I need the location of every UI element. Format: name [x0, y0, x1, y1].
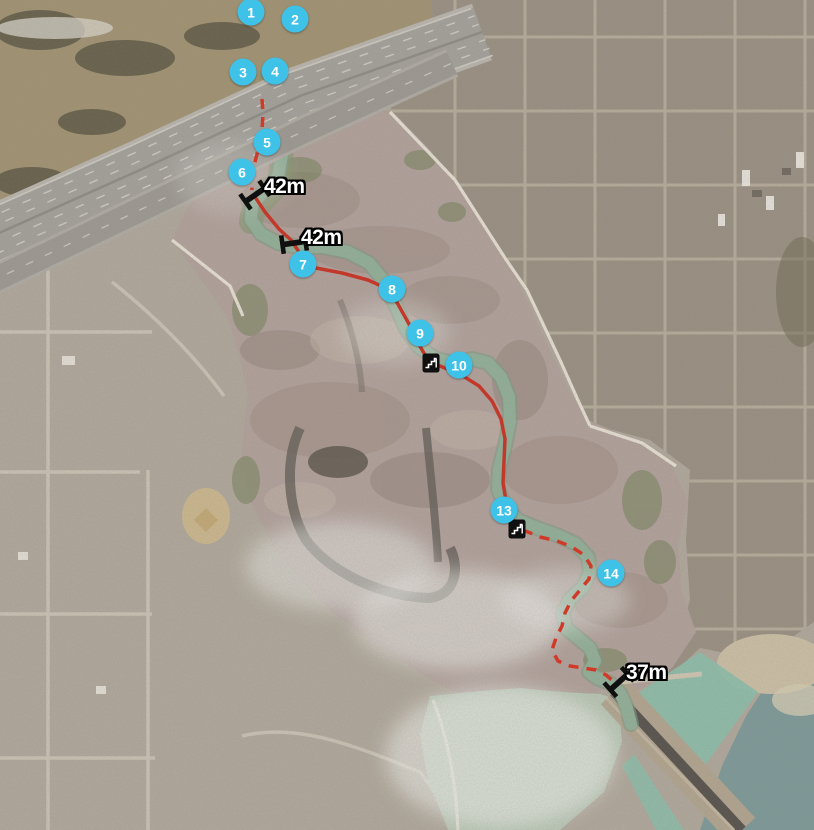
numbered-trail-marker[interactable]: 4	[262, 58, 289, 85]
numbered-trail-marker[interactable]: 2	[282, 6, 309, 33]
marker-number: 7	[299, 257, 307, 271]
marker-number: 6	[238, 165, 246, 179]
numbered-trail-marker[interactable]: 1	[238, 0, 265, 26]
numbered-trail-marker[interactable]: 7	[290, 251, 317, 278]
numbered-trail-marker[interactable]: 10	[446, 352, 473, 379]
marker-number: 13	[496, 503, 512, 517]
numbered-trail-marker[interactable]: 5	[254, 129, 281, 156]
marker-number: 4	[271, 64, 279, 78]
marker-number: 2	[291, 12, 299, 26]
marker-number: 5	[263, 135, 271, 149]
numbered-trail-marker[interactable]: 3	[230, 59, 257, 86]
marker-number: 8	[388, 282, 396, 296]
numbered-trail-marker[interactable]: 14	[598, 560, 625, 587]
marker-layer: 1 2 3 4 5 6 7 8 9 10 13 14	[0, 0, 814, 830]
numbered-trail-marker[interactable]: 13	[491, 497, 518, 524]
marker-number: 10	[451, 358, 467, 372]
numbered-trail-marker[interactable]: 9	[407, 320, 434, 347]
marker-number: 14	[603, 566, 619, 580]
marker-number: 3	[239, 65, 247, 79]
marker-number: 9	[416, 326, 424, 340]
numbered-trail-marker[interactable]: 8	[379, 276, 406, 303]
numbered-trail-marker[interactable]: 6	[229, 159, 256, 186]
trail-map: 42m 42m 37m 1 2 3 4 5 6 7 8 9 10 13 14	[0, 0, 814, 830]
marker-number: 1	[247, 5, 255, 19]
